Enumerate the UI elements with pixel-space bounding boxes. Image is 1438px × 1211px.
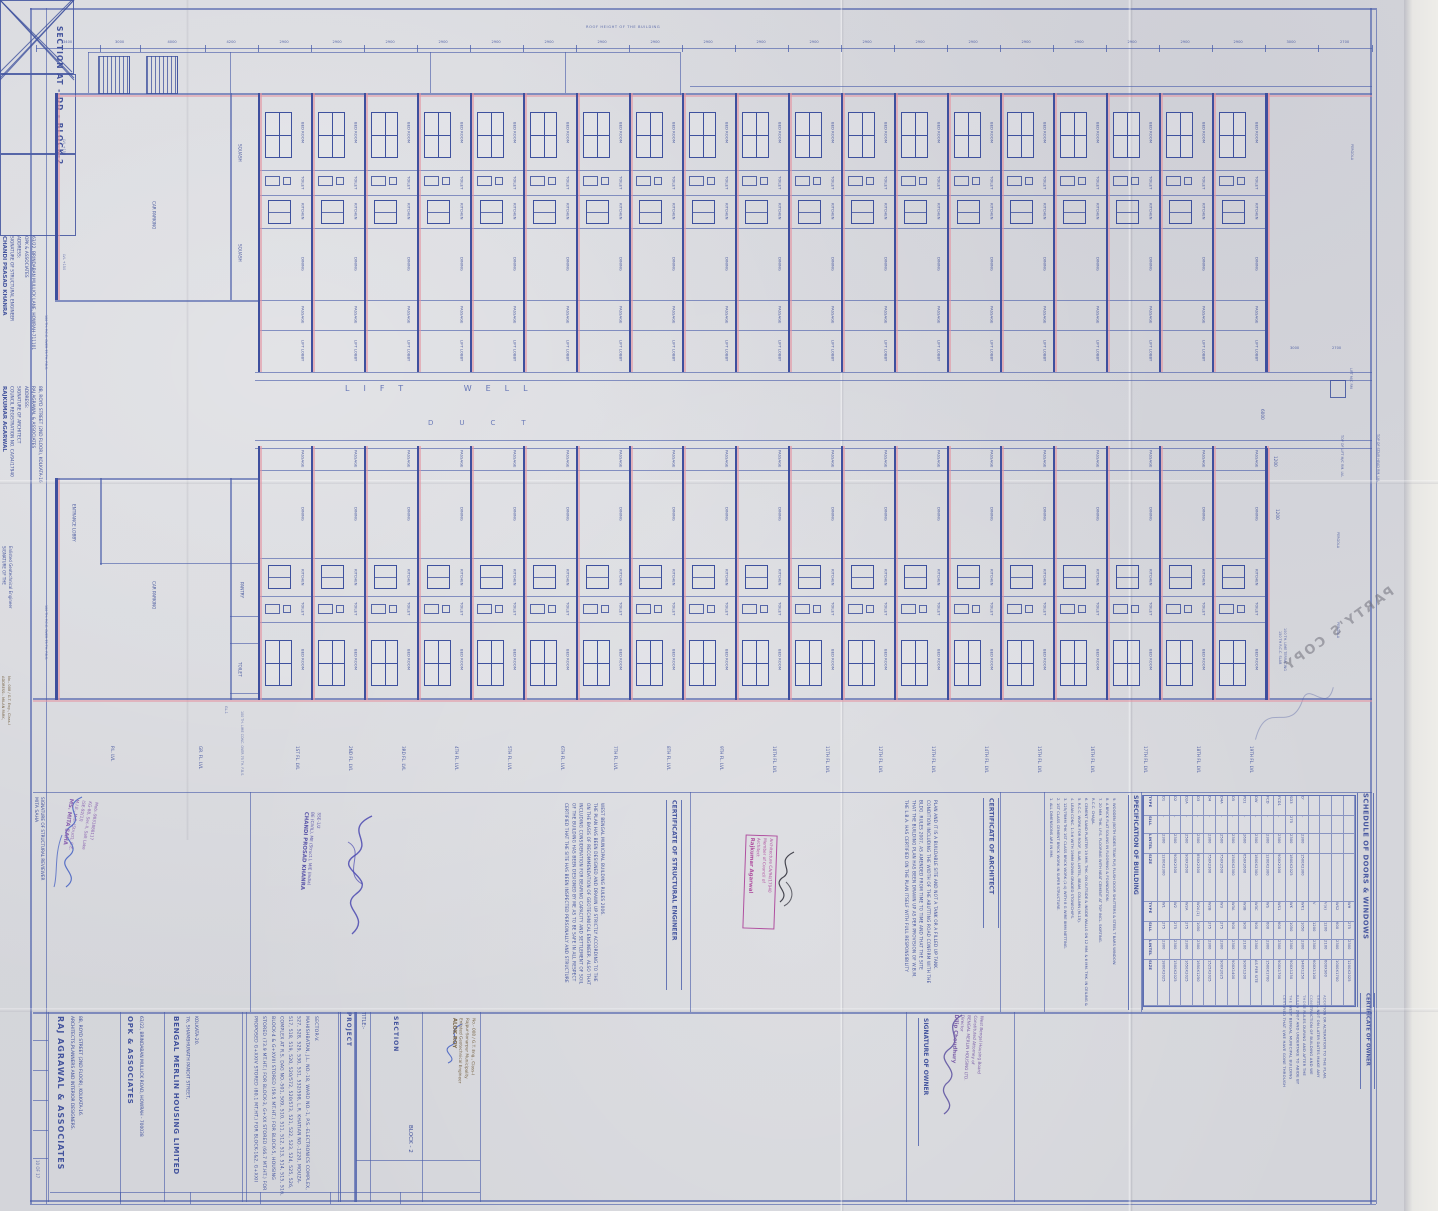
toilet-fixture-icon (477, 176, 492, 186)
bedroom-window-icon (583, 112, 610, 158)
room-label: PASSAGE (1147, 300, 1155, 330)
duct-label: DUCT (428, 419, 552, 427)
toilet-fixture-icon (636, 176, 651, 186)
schedule-cell: 900X1400 (1228, 960, 1240, 1006)
room-label-text: TOILET (301, 602, 306, 615)
room-label-text: PASSAGE (1096, 450, 1101, 467)
corner-strip-line (33, 1130, 48, 1131)
room-label-text: DINING (725, 507, 730, 521)
toilet-fixture-icon (742, 604, 757, 614)
schedule-cell: 275 (1344, 922, 1356, 940)
schedule-cell (1309, 854, 1321, 902)
schedule-cell: 1800X2025 (1286, 854, 1298, 902)
room-label-text: DINING (407, 507, 412, 521)
floor-level-label: 8TH FL. LVL (666, 746, 671, 774)
kitchen-window-icon (904, 565, 927, 589)
lift-well-label: LIFT WELL (345, 384, 542, 393)
room-label-text: TOILET (884, 176, 889, 189)
schedule-cell: W3B (1239, 902, 1251, 922)
dimension-value: 2900 (1128, 40, 1137, 44)
room-label-text: PASSAGE (937, 306, 942, 323)
room-label-text: LIFT LOBBY (672, 340, 677, 361)
toilet-fixture-icon (1007, 604, 1022, 614)
room-label-text: TOILET (566, 176, 571, 189)
titleblock-divider (164, 1012, 165, 1202)
toilet-fixture-icon (601, 177, 609, 185)
room-label: KITCHEN (829, 195, 837, 228)
floor-level-label: GR. FL. LVL (198, 746, 203, 773)
room-label: DINING (882, 470, 890, 558)
room-label: BED ROOM (405, 622, 413, 698)
room-label: BED ROOM (617, 95, 625, 170)
schedule-cell: D' (1297, 796, 1309, 816)
dimension-value: 2900 (916, 40, 925, 44)
bedroom-window-icon (1166, 112, 1193, 158)
dimension-value: 2900 (545, 40, 554, 44)
room-label-text: KITCHEN (1043, 569, 1048, 585)
room-label-text: KITCHEN (1149, 569, 1154, 585)
schedule-cell: FCD (1262, 796, 1274, 816)
specification-item: 4. LEAN CONC. 1:3:6 WITH 19MM DOWN GRADE… (1069, 798, 1076, 1006)
room-label: PASSAGE (882, 448, 890, 470)
bay-wall (417, 446, 419, 700)
schedule-cell: W3A (1228, 902, 1240, 922)
room-label-text: LIFT LOBBY (407, 340, 412, 361)
room-label: LIFT LOBBY (935, 330, 943, 372)
room-label: PASSAGE (1253, 300, 1261, 330)
room-label: TOILET (988, 596, 996, 622)
room-label-text: PASSAGE (1202, 450, 1207, 467)
room-label: BED ROOM (1200, 622, 1208, 698)
room-label: BED ROOM (988, 622, 996, 698)
toilet-fixture-icon (901, 176, 916, 186)
toilet-fixture-icon (954, 604, 969, 614)
room-label-text: PASSAGE (354, 306, 359, 323)
room-label: PASSAGE (352, 448, 360, 470)
schedule-cell: WS1 (1274, 902, 1286, 922)
schedule-cell: 275 (1216, 922, 1228, 940)
kitchen-window-icon (374, 565, 397, 589)
bay-wall (735, 446, 737, 700)
schedule-cell: 1000X1700 (1332, 960, 1344, 1006)
room-label-text: PASSAGE (619, 306, 624, 323)
kitchen-window-icon (1063, 200, 1086, 224)
room-label-text: TOILET (831, 176, 836, 189)
room-label-text: LIFT LOBBY (990, 340, 995, 361)
room-label: TOILET (670, 170, 678, 195)
room-label-text: TOILET (460, 602, 465, 615)
schedule-cell (1344, 816, 1356, 834)
toilet-fixture-icon (848, 604, 863, 614)
room-label-text: TOILET (778, 176, 783, 189)
room-label: BED ROOM (935, 95, 943, 170)
bay-wall (417, 93, 419, 372)
toilet-fixture-icon (530, 176, 545, 186)
room-label-text: TOILET (990, 176, 995, 189)
room-label-text: BED ROOM (1149, 649, 1154, 670)
corner-strip-line (190, 1192, 191, 1204)
room-label: TOILET (1147, 596, 1155, 622)
room-label: KITCHEN (299, 195, 307, 228)
kitchen-window-icon (1063, 565, 1086, 589)
schedule-cell (1332, 796, 1344, 816)
floor-level-label: 1ST FL. LVL (295, 746, 300, 774)
room-label: LVL +150 (60, 120, 68, 175)
toilet-fixture-icon (1219, 604, 1234, 614)
reviewer-label: SIGNATURE OF STRUCTURAL REVIEWER (40, 797, 45, 884)
bedroom-window-icon (583, 640, 610, 686)
section-divider (690, 792, 691, 1012)
room-label-text: DINING (1096, 507, 1101, 521)
geotech-label: SIGNATURE OF THEEnlisted Geotechnical En… (0, 546, 13, 676)
bay-wall (1106, 93, 1108, 372)
titleblock-divider (480, 1012, 481, 1202)
room-label-text: PASSAGE (778, 306, 783, 323)
room-label: PASSAGE (1253, 448, 1261, 470)
schedule-header-cell: SIZE (1144, 854, 1158, 902)
room-label-text: PASSAGE (513, 306, 518, 323)
bay-wall (947, 93, 949, 372)
room-label: BED ROOM (670, 622, 678, 698)
room-label: PASSAGE (1094, 448, 1102, 470)
dimension-value: 2900 (757, 40, 766, 44)
room-label-text: PASSAGE (937, 450, 942, 467)
room-label-text: TOILET (1202, 176, 1207, 189)
room-label: KITCHEN (1041, 195, 1049, 228)
room-label: DINING (935, 470, 943, 558)
schedule-cell (1344, 834, 1356, 854)
room-label-text: PASSAGE (1255, 450, 1260, 467)
room-label: DINING (511, 470, 519, 558)
room-label-text: KITCHEN (619, 203, 624, 219)
schedule-cell: 2300 (1158, 940, 1170, 960)
room-label: BED ROOM (988, 95, 996, 170)
room-label-text: LIFT LOBBY (725, 340, 730, 361)
room-label-text: DINING (672, 257, 677, 271)
toilet-fixture-icon (548, 605, 556, 613)
schedule-cell (1309, 816, 1321, 834)
room-label: PERGOLA (1334, 512, 1342, 568)
room-label-text: TOILET (619, 602, 624, 615)
schedule-title: SCHEDULE OF DOORS & WINDOWS (1357, 793, 1374, 1007)
schedule-cell: WS (1262, 902, 1274, 922)
bedroom-window-icon (1219, 112, 1246, 158)
room-label: PASSAGE (458, 448, 466, 470)
room-label: 100 TH. LIME TERRACING (1281, 626, 1289, 672)
room-label: PASSAGE (670, 448, 678, 470)
dimension-value: 4000 (168, 40, 177, 44)
room-label: BED ROOM (1200, 95, 1208, 170)
room-label: DINING (564, 228, 572, 300)
toilet-fixture-icon (442, 605, 450, 613)
bedroom-window-icon (689, 640, 716, 686)
room-label-text: KITCHEN (513, 569, 518, 585)
floor-boundary-line (255, 440, 1372, 441)
room-label-text: BED ROOM (1043, 649, 1048, 670)
room-label: KITCHEN (1094, 195, 1102, 228)
room-label: BED ROOM (776, 622, 784, 698)
room-label-text: DINING (990, 257, 995, 271)
titleblock-divider (242, 1012, 243, 1202)
slab-line (100, 563, 258, 564)
room-label: KITCHEN (1253, 195, 1261, 228)
floor-level-label: 18TH FL. LVL (1196, 746, 1201, 777)
kitchen-window-icon (321, 565, 344, 589)
room-label-text: KITCHEN (937, 569, 942, 585)
kitchen-window-icon (1222, 565, 1245, 589)
stair-icon (98, 56, 130, 94)
dimension-tick (470, 45, 471, 52)
room-label-text: BED ROOM (619, 122, 624, 143)
floor-level-label: 17TH FL. LVL (1143, 746, 1148, 777)
room-label: 100 TH. P.C.C. OVER 75 TH. F.B.S. (42, 295, 50, 390)
room-label-text: PASSAGE (460, 306, 465, 323)
kitchen-window-icon (957, 200, 980, 224)
titleblock-divider (1014, 1012, 1015, 1202)
slab-line (55, 300, 258, 302)
corner-strip-line (33, 1158, 48, 1159)
room-label-text: TOILET (354, 176, 359, 189)
signature-line: No.- 008 / G.T. Eng., Class-I (6, 676, 12, 796)
schedule-header-cell: LINTEL (1144, 834, 1158, 854)
room-label-text: BED ROOM (407, 649, 412, 670)
bedroom-window-icon (530, 640, 557, 686)
room-label: DINING (1200, 470, 1208, 558)
schedule-cell: 2300 (1158, 834, 1170, 854)
drawing-block-ref: BLOCK - 2 (407, 1125, 413, 1157)
room-label: PASSAGE (670, 300, 678, 330)
room-label: TOILET (511, 596, 519, 622)
room-label-text: BED ROOM (1202, 122, 1207, 143)
room-label: DINING (458, 470, 466, 558)
room-label: TOILET (405, 596, 413, 622)
room-label-text: DINING (1255, 507, 1260, 521)
room-label: BED ROOM (1041, 95, 1049, 170)
toilet-fixture-icon (1078, 177, 1086, 185)
room-label-text: DINING (460, 507, 465, 521)
schedule-cell: 2300 (1204, 834, 1216, 854)
room-label-text: BED ROOM (460, 649, 465, 670)
room-label: KITCHEN (352, 558, 360, 596)
kitchen-window-icon (480, 200, 503, 224)
room-label-text: PASSAGE (407, 306, 412, 323)
room-label: BED ROOM (1147, 622, 1155, 698)
kitchen-window-icon (851, 565, 874, 589)
floor-level-label: 12TH FL. LVL (878, 746, 883, 777)
dimension-tick (1265, 45, 1266, 52)
room-label-text: PERGOLA (1336, 622, 1340, 638)
schedule-cell: 2300 (1170, 834, 1182, 854)
kitchen-window-icon (957, 565, 980, 589)
toilet-fixture-icon (919, 605, 927, 613)
room-label-text: KITCHEN (1255, 203, 1260, 219)
specification-item: 1. ALL DIMENSIONS ARE IN MM. (1048, 798, 1055, 1006)
room-label-text: TOILET (354, 602, 359, 615)
schedule-cell: 750X2300 (1204, 854, 1216, 902)
schedule-cell: 600X1100 (1309, 960, 1321, 1006)
room-label: TOILET (829, 596, 837, 622)
schedule-cell: 600 (1274, 922, 1286, 940)
room-label-text: LVL +150 (62, 139, 66, 155)
floor-level-label: 13TH FL. LVL (931, 746, 936, 777)
toilet-fixture-icon (866, 605, 874, 613)
toilet-fixture-icon (654, 177, 662, 185)
room-label-text: DINING (1149, 507, 1154, 521)
schedule-cell: 900X1200 (1239, 960, 1251, 1006)
schedule-cell: 600X900 (1320, 960, 1332, 1006)
titleblock-divider (906, 1012, 907, 1202)
kitchen-window-icon (851, 200, 874, 224)
schedule-cell: 750X2500 (1216, 854, 1228, 902)
room-label-text: PASSAGE (672, 306, 677, 323)
room-label: KITCHEN (988, 558, 996, 596)
corner-strip-line (400, 1192, 401, 1204)
room-label: TOILET (511, 170, 519, 195)
dimension-line (36, 48, 1372, 49)
room-label: KITCHEN (1200, 195, 1208, 228)
toilet-fixture-icon (795, 176, 810, 186)
schedule-header-cell: LINTEL (1144, 940, 1158, 960)
room-label-text: TOILET (1149, 602, 1154, 615)
room-label: DINING (1094, 470, 1102, 558)
dimension-value: 2700 (1340, 40, 1349, 44)
schedule-cell: 2300 (1251, 940, 1263, 960)
room-label: TOILET (882, 596, 890, 622)
schedule-cell: 2300 (1181, 940, 1193, 960)
floor-boundary-line (33, 698, 1372, 700)
room-label: TOILET (1147, 170, 1155, 195)
bay-wall (1212, 446, 1214, 700)
room-label-text: BED ROOM (460, 122, 465, 143)
outer-wall (55, 93, 58, 300)
schedule-cell: 2300 (1228, 940, 1240, 960)
dimension-value: 2900 (386, 40, 395, 44)
dimension-tick (1000, 45, 1001, 52)
bedroom-window-icon (795, 640, 822, 686)
room-label-text: TOILET (672, 602, 677, 615)
room-label-text: KITCHEN (354, 203, 359, 219)
schedule-cell (1320, 816, 1332, 834)
slab-line (230, 643, 258, 644)
kitchen-window-icon (1116, 200, 1139, 224)
bedroom-window-icon (1060, 640, 1087, 686)
floor-level-label: 16TH FL. LVL (1090, 746, 1095, 777)
schedule-cell: DW (1251, 796, 1263, 816)
room-label-text: KITCHEN (460, 203, 465, 219)
certificate-owner-title: CERTIFICATE OF OWNER (1360, 993, 1375, 1089)
room-label: DINING (405, 470, 413, 558)
schedule-cell: 1200X2300 (1262, 854, 1274, 902)
kitchen-window-icon (745, 200, 768, 224)
schedule-cell: 1650X2025 (1181, 960, 1193, 1006)
toilet-fixture-icon (1219, 176, 1234, 186)
schedule-cell: W1 (1158, 902, 1170, 922)
signature-line: ADDRESS: (14, 236, 21, 386)
room-label: KITCHEN (829, 558, 837, 596)
room-label: LIFT LOBBY (1147, 330, 1155, 372)
schedule-cell: 1800X2300 (1251, 854, 1263, 902)
room-label-text: DINING (301, 507, 306, 521)
schedule-cell: 275 (1286, 816, 1298, 834)
room-label-text: TOP OF STAIR HEAD RM. LVL (1376, 434, 1380, 482)
room-label: DINING (935, 228, 943, 300)
room-label: DINING (617, 470, 625, 558)
schedule-cell: D4A (1216, 796, 1228, 816)
corner-strip-line (330, 1192, 331, 1204)
room-label-text: DINING (831, 257, 836, 271)
room-label-text: KITCHEN (1096, 569, 1101, 585)
room-label-text: KITCHEN (778, 569, 783, 585)
lift-machine-room-icon (1330, 380, 1346, 398)
bedroom-window-icon (636, 640, 663, 686)
room-label-text: DINING (513, 507, 518, 521)
room-label-text: KITCHEN (354, 569, 359, 585)
toilet-fixture-icon (442, 177, 450, 185)
border-top (30, 8, 1376, 10)
room-label: DINING (670, 228, 678, 300)
toilet-fixture-icon (1131, 605, 1139, 613)
dimension-value: 2700 (1332, 346, 1341, 350)
room-label-text: LVL +150 (62, 254, 66, 270)
toilet-fixture-icon (389, 605, 397, 613)
specification-item: 3. 125/75MM THK 1ST CLASS BRICK WORK (1:… (1062, 798, 1069, 1006)
room-label-text: LIFT LOBBY (619, 340, 624, 361)
toilet-fixture-icon (424, 176, 439, 186)
schedule-cell: 1200X2300 (1158, 854, 1170, 902)
room-label: DINING (511, 228, 519, 300)
room-label-text: PASSAGE (778, 450, 783, 467)
room-label-text: BED ROOM (937, 122, 942, 143)
room-label: BED ROOM (352, 95, 360, 170)
kitchen-window-icon (268, 565, 291, 589)
dimension-value: 1200 (1275, 505, 1280, 524)
schedule-cell: 2500 (1216, 834, 1228, 854)
toilet-fixture-icon (813, 177, 821, 185)
room-label: SQUASH (236, 205, 244, 300)
bay-wall (364, 93, 366, 372)
toilet-fixture-icon (707, 605, 715, 613)
room-label: LIFT LOBBY (1253, 330, 1261, 372)
room-label-text: LIFT LOBBY (513, 340, 518, 361)
schedule-cell: - (1228, 816, 1240, 834)
schedule-cell: 1200 (1309, 922, 1321, 940)
room-label: BED ROOM (723, 622, 731, 698)
schedule-cell: WK (1286, 902, 1298, 922)
room-label: KITCHEN (405, 195, 413, 228)
floor-level-label: P.L. LVL (110, 746, 115, 765)
toilet-fixture-icon (1113, 176, 1128, 186)
kitchen-window-icon (374, 200, 397, 224)
room-label: BED ROOM (829, 95, 837, 170)
bay-wall (629, 93, 631, 372)
dimension-value: 2900 (810, 40, 819, 44)
room-label-text: BED ROOM (1043, 122, 1048, 143)
room-label: TOILET (1094, 170, 1102, 195)
toilet-fixture-icon (1078, 605, 1086, 613)
room-label: KITCHEN (776, 558, 784, 596)
annex-line (230, 52, 231, 93)
dimension-tick (1212, 45, 1213, 52)
room-label-text: PASSAGE (884, 306, 889, 323)
titleblock-divider (422, 1012, 423, 1202)
room-label: BED ROOM (1253, 622, 1261, 698)
schedule-cell: 900X1250 (1286, 960, 1298, 1006)
signature-line: Enlisted Geotechnical Engineer (7, 546, 14, 676)
room-label-text: TOILET (1202, 602, 1207, 615)
room-label-text: KITCHEN (301, 569, 306, 585)
bay-wall (1053, 93, 1055, 372)
architect-firm-block: RAJ AGRAWAL & ASSOCIATES ARCHITECTS,PLAN… (54, 1016, 83, 1198)
